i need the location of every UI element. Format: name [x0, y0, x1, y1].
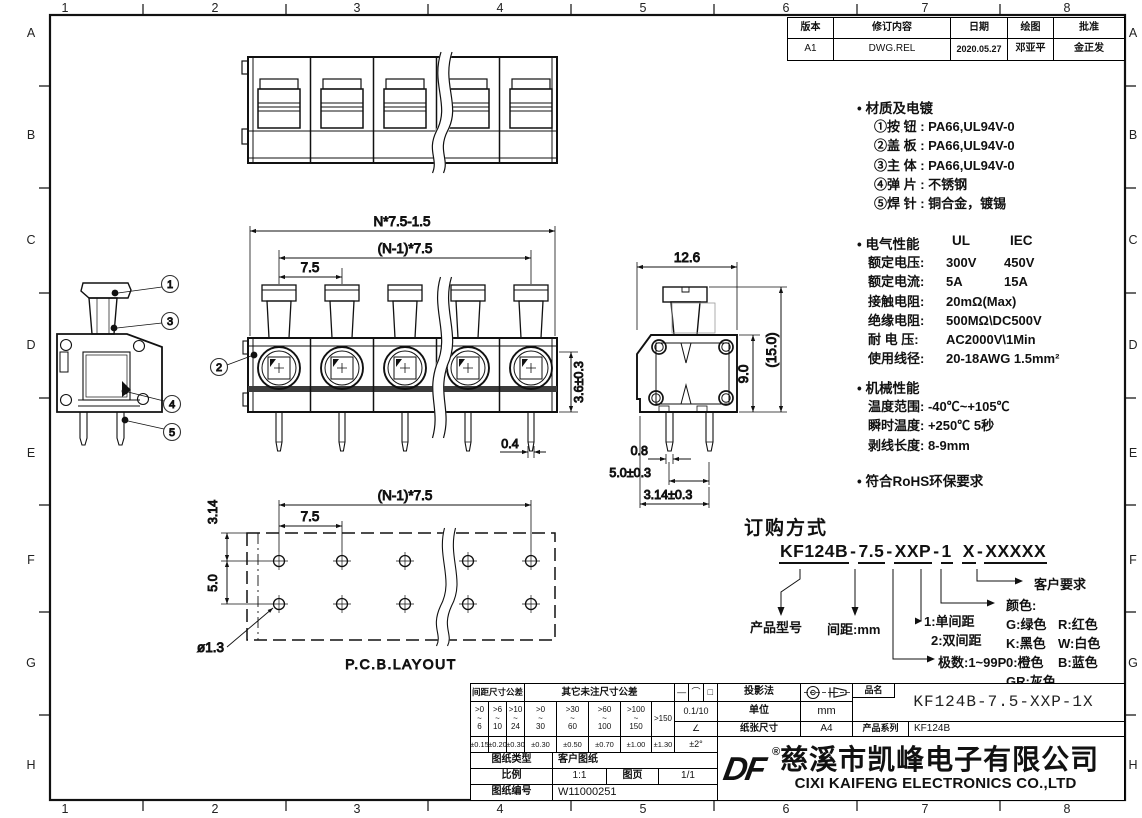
tol-range-over: >150: [651, 701, 675, 737]
grid-labels-bottom: 12345678: [62, 802, 1071, 816]
doc-type-label: 图纸类型: [470, 752, 553, 769]
electrical-row: 绝缘电阻:500MΩ\DC500V: [868, 311, 1034, 330]
arc-symbol-icon: ⌒: [688, 684, 702, 701]
grid-label: B: [27, 128, 35, 142]
grid-label: F: [27, 553, 35, 567]
material-item: ③主 体 : PA66,UL94V-0: [874, 156, 1015, 175]
registered-mark: ®: [772, 746, 780, 758]
rohs-note: 符合RoHS环保要求: [866, 474, 984, 489]
grid-label: 4: [497, 1, 504, 15]
mechanical-title: 机械性能: [866, 381, 920, 396]
color-row: G:绿色R:红色: [1006, 614, 1100, 633]
ordering-label-customer: 客户要求: [1034, 574, 1086, 593]
revision-header-version: 版本: [787, 17, 834, 39]
notes-material: • 材质及电镀 ①按 钮 : PA66,UL94V-0 ②盖 板 : PA66,…: [857, 97, 1015, 213]
front-view: [243, 277, 557, 451]
dim-pcb-span: (N-1)*7.5: [378, 488, 433, 503]
doc-type-value: 客户图纸: [552, 752, 718, 769]
ordering-label-poles: 极数:1~99P: [938, 652, 1006, 671]
right-side-dims: 12.6 9.0 (15.0) 0.8 5.0±0.3 3.14±0.3: [609, 250, 787, 508]
grid-label: 8: [1064, 1, 1071, 15]
dim-pitch: 7.5: [301, 260, 320, 275]
ordering-label-pitch: 间距:mm: [827, 619, 880, 638]
material-item: ④弹 片 : 不锈钢: [874, 175, 1015, 194]
drawing-sheet: 12345678 12345678 ABCDEFGH ABCDEFGH N*7.: [0, 0, 1142, 818]
left-side-view: 1 3 4 5: [57, 276, 181, 446]
dim-pcb-row-offset: 3.14: [206, 500, 220, 524]
material-item: ②盖 板 : PA66,UL94V-0: [874, 136, 1015, 155]
front-dims-top: N*7.5-1.5 (N-1)*7.5 7.5: [250, 214, 555, 336]
electrical-row: 耐 电 压:AC2000V\1Min: [868, 330, 1034, 349]
unit-value: mm: [800, 701, 853, 722]
grid-label: E: [1129, 446, 1137, 460]
electrical-col-ul: UL: [952, 233, 970, 248]
revision-date: 2020.05.27: [950, 38, 1008, 61]
revision-header-content: 修订内容: [833, 17, 951, 39]
material-item: ①按 钮 : PA66,UL94V-0: [874, 117, 1015, 136]
company-name-en: CIXI KAIFENG ELECTRONICS CO.,LTD: [772, 776, 1099, 792]
revision-content: DWG.REL: [833, 38, 951, 61]
tol-range: >6~10: [488, 701, 507, 737]
grid-label: 6: [783, 1, 790, 15]
angle-tolerance: ±2°: [674, 736, 718, 753]
series-value: KF124B: [908, 721, 1125, 737]
part-name-label: 品名: [852, 683, 895, 698]
straightness-symbol-icon: —: [675, 684, 688, 701]
flatness-tolerance: 0.1/10: [674, 701, 718, 722]
grid-label: A: [27, 26, 36, 40]
revision-header-date: 日期: [950, 17, 1008, 39]
tol-value: ±0.50: [556, 736, 589, 753]
page-label: 图页: [606, 768, 659, 785]
tol-range: >30~60: [556, 701, 589, 737]
notes-electrical: • 电气性能 UL IEC 额定电压:300V450V 额定电流:5A15A 接…: [857, 233, 1034, 369]
top-view: [242, 52, 557, 173]
dim-pin-width-front: 0.4: [501, 437, 518, 451]
grid-label: H: [1128, 758, 1137, 772]
ordering-label-pole-type-1: 1:单间距: [924, 611, 975, 630]
paper-value: A4: [800, 721, 853, 737]
tol-other-header: 其它未注尺寸公差: [524, 683, 675, 702]
mechanical-row: 瞬时温度: +250℃ 5秒: [868, 416, 1010, 435]
angle-symbol-icon: ∠: [674, 721, 718, 737]
grid-label: 2: [212, 1, 219, 15]
bullet: •: [857, 381, 862, 396]
dim-pcb-pitch: 7.5: [301, 509, 320, 524]
grid-label: 8: [1064, 802, 1071, 816]
series-label: 产品系列: [852, 721, 909, 737]
grid-labels-left: ABCDEFGH: [26, 26, 36, 772]
grid-label: 5: [640, 1, 647, 15]
square-symbol-icon: □: [703, 684, 717, 701]
notes-mechanical: • 机械性能 温度范围: -40℃~+105℃ 瞬时温度: +250℃ 5秒 剥…: [857, 377, 1010, 455]
tol-range: >10~24: [506, 701, 525, 737]
ordering-colors: 颜色: G:绿色R:红色 K:黑色W:白色 0:橙色B:蓝色 GR:灰色: [1006, 595, 1100, 690]
notes-rohs: • 符合RoHS环保要求: [857, 470, 983, 490]
kaifeng-logo: DF: [721, 752, 767, 785]
balloon-4: 4: [169, 399, 175, 411]
revision-drawn-by: 邓亚平: [1007, 38, 1054, 61]
bullet: •: [857, 101, 862, 116]
scale-value: 1:1: [552, 768, 607, 785]
grid-label: H: [26, 758, 35, 772]
balloon-5: 5: [169, 427, 175, 439]
electrical-row: 使用线径:20-18AWG 1.5mm²: [868, 349, 1034, 368]
part-segment: 7.5: [858, 541, 886, 564]
paper-label: 纸张尺寸: [717, 721, 801, 737]
grid-label: A: [1129, 26, 1138, 40]
grid-label: 1: [62, 802, 69, 816]
dim-side-height: 9.0: [736, 365, 751, 384]
grid-labels-top: 12345678: [62, 1, 1071, 15]
dim-side-total-height: (15.0): [764, 332, 779, 367]
company-cell: DF ®慈溪市凯峰电子有限公司 CIXI KAIFENG ELECTRONICS…: [717, 736, 1125, 801]
dim-total-width: N*7.5-1.5: [373, 214, 430, 229]
revision-header-approved: 批准: [1053, 17, 1125, 39]
balloon-2: 2: [216, 362, 222, 374]
grid-label: C: [1128, 233, 1137, 247]
part-segment: 1: [941, 541, 953, 564]
tol-value: ±0.30: [524, 736, 557, 753]
ordering-title: 订购方式: [744, 513, 828, 540]
grid-label: 6: [783, 802, 790, 816]
material-title: 材质及电镀: [866, 101, 934, 116]
grid-label: 3: [354, 802, 361, 816]
unit-label: 单位: [717, 701, 801, 722]
dim-span: (N-1)*7.5: [378, 241, 433, 256]
pcb-caption: P.C.B.LAYOUT: [345, 656, 457, 672]
grid-label: 4: [497, 802, 504, 816]
material-item: ⑤焊 针 : 铜合金，镀锡: [874, 194, 1015, 213]
part-segment: X: [962, 541, 976, 564]
bullet: •: [857, 237, 862, 252]
grid-label: 7: [922, 802, 929, 816]
grid-label: 7: [922, 1, 929, 15]
dim-side-width: 12.6: [674, 250, 700, 265]
tol-value: ±0.30: [506, 736, 525, 753]
color-row: K:黑色W:白色: [1006, 633, 1100, 652]
doc-no-label: 图纸编号: [470, 784, 553, 801]
tol-pitch-header: 间距尺寸公差: [470, 683, 525, 702]
grid-label: G: [26, 656, 36, 670]
revision-approved-by: 金正发: [1053, 38, 1125, 61]
tol-symbols: —⌒□: [674, 683, 718, 702]
doc-no-value: W11000251: [552, 784, 718, 801]
balloon-1: 1: [167, 279, 173, 291]
electrical-row: 接触电阻:20mΩ(Max): [868, 292, 1034, 311]
balloon-3: 3: [167, 316, 173, 328]
grid-label: G: [1128, 656, 1138, 670]
revision-header-drawn: 绘图: [1007, 17, 1054, 39]
tol-range: >100~150: [620, 701, 652, 737]
electrical-title: 电气性能: [866, 237, 920, 252]
electrical-col-iec: IEC: [1010, 233, 1033, 248]
first-angle-projection-icon: [804, 685, 850, 700]
tol-range: >0~30: [524, 701, 557, 737]
tol-range: >0~6: [470, 701, 489, 737]
grid-label: 3: [354, 1, 361, 15]
company-name-cn: 慈溪市凯峰电子有限公司: [780, 744, 1099, 775]
tol-value: ±0.20: [488, 736, 507, 753]
ordering-label-pole-type-2: 2:双间距: [931, 630, 982, 649]
scale-label: 比例: [470, 768, 553, 785]
tol-value: ±1.00: [620, 736, 652, 753]
dim-pcb-hole: ø1.3: [197, 640, 224, 655]
revision-version: A1: [787, 38, 834, 61]
ordering-part-number: KF124B-7.5-XXP-1X-XXXXX: [779, 541, 1047, 562]
grid-label: C: [26, 233, 35, 247]
grid-label: B: [1129, 128, 1137, 142]
tol-value: ±0.70: [588, 736, 621, 753]
grid-label: F: [1129, 553, 1137, 567]
grid-label: 5: [640, 802, 647, 816]
part-segment: KF124B: [779, 541, 849, 564]
mechanical-row: 剥线长度: 8-9mm: [868, 436, 1010, 455]
tol-value: ±1.30: [651, 736, 675, 753]
grid-label: D: [1128, 338, 1137, 352]
dim-pin-pitch-side: 5.0±0.3: [609, 466, 651, 480]
mechanical-row: 温度范围: -40℃~+105℃: [868, 397, 1010, 416]
projection-label: 投影法: [717, 683, 801, 702]
pcb-layout: [247, 528, 555, 646]
electrical-row: 额定电流:5A15A: [868, 272, 1034, 291]
part-segment: XXP: [894, 541, 933, 564]
grid-label: 2: [212, 802, 219, 816]
ordering-label-model: 产品型号: [750, 617, 802, 636]
electrical-row: 额定电压:300V450V: [868, 253, 1034, 272]
page-value: 1/1: [658, 768, 718, 785]
grid-label: D: [26, 338, 35, 352]
projection-value: [800, 683, 853, 702]
tol-value: ±0.15: [470, 736, 489, 753]
tol-range: >60~100: [588, 701, 621, 737]
grid-labels-right: ABCDEFGH: [1128, 26, 1138, 772]
dim-pin-width-side: 0.8: [631, 444, 648, 458]
ordering-leaders: [778, 569, 1024, 663]
color-row: 0:橙色B:蓝色: [1006, 652, 1100, 671]
dim-body-height: 3.6±0.3: [572, 361, 586, 403]
right-side-view: [637, 287, 737, 451]
dim-pcb-row-pitch: 5.0: [206, 574, 220, 591]
grid-label: 1: [62, 1, 69, 15]
part-segment: XXXXX: [984, 541, 1047, 564]
dim-pin-offset-side: 3.14±0.3: [644, 488, 693, 502]
color-title: 颜色:: [1006, 595, 1100, 614]
grid-label: E: [27, 446, 35, 460]
bullet: •: [857, 474, 862, 489]
